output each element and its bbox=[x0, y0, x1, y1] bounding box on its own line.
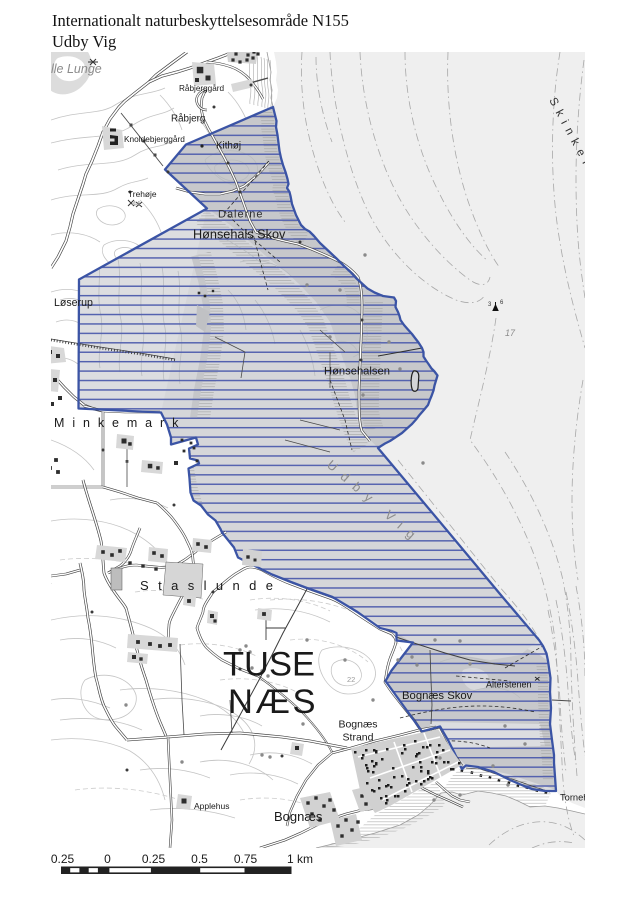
svg-text:0.25: 0.25 bbox=[142, 852, 166, 866]
svg-text:0.75: 0.75 bbox=[234, 852, 258, 866]
svg-text:Råbjerg: Råbjerg bbox=[171, 114, 205, 125]
svg-text:Bognæs: Bognæs bbox=[338, 719, 377, 731]
svg-text:Hønsehalsen: Hønsehalsen bbox=[324, 366, 390, 378]
svg-text:Staslunde: Staslunde bbox=[140, 578, 282, 593]
svg-text:Løserup: Løserup bbox=[54, 297, 93, 309]
svg-text:Råbjerggård: Råbjerggård bbox=[179, 83, 225, 93]
svg-text:Dalerne: Dalerne bbox=[218, 209, 264, 221]
svg-text:Applehus: Applehus bbox=[194, 801, 229, 811]
svg-text:Bognæs Skov: Bognæs Skov bbox=[402, 690, 473, 702]
svg-text:Bognæs: Bognæs bbox=[274, 809, 323, 824]
svg-text:Knoldebjerggård: Knoldebjerggård bbox=[124, 134, 185, 144]
svg-text:Trehøje: Trehøje bbox=[128, 189, 157, 199]
svg-text:lle Lunge: lle Lunge bbox=[51, 62, 102, 76]
svg-text:1 km: 1 km bbox=[287, 852, 313, 866]
svg-text:0: 0 bbox=[104, 852, 111, 866]
svg-text:Udby Vig: Udby Vig bbox=[52, 32, 116, 51]
svg-text:Kithøj: Kithøj bbox=[216, 141, 241, 152]
svg-text:Strand: Strand bbox=[343, 732, 374, 744]
svg-text:TUSE: TUSE bbox=[223, 646, 315, 684]
svg-text:0.5: 0.5 bbox=[191, 852, 208, 866]
svg-text:Minkemark: Minkemark bbox=[54, 416, 186, 430]
svg-text:Hønsehals Skov: Hønsehals Skov bbox=[193, 228, 286, 242]
svg-text:17: 17 bbox=[505, 328, 516, 338]
svg-text:Torneh: Torneh bbox=[560, 793, 588, 803]
svg-text:0.25: 0.25 bbox=[51, 852, 75, 866]
svg-text:44: 44 bbox=[132, 199, 140, 208]
svg-text:22: 22 bbox=[347, 675, 355, 684]
svg-text:Internationalt naturbeskyttels: Internationalt naturbeskyttelsesområde N… bbox=[52, 11, 349, 30]
svg-text:NÆS: NÆS bbox=[228, 683, 318, 721]
svg-text:Alterstenen: Alterstenen bbox=[486, 680, 532, 690]
